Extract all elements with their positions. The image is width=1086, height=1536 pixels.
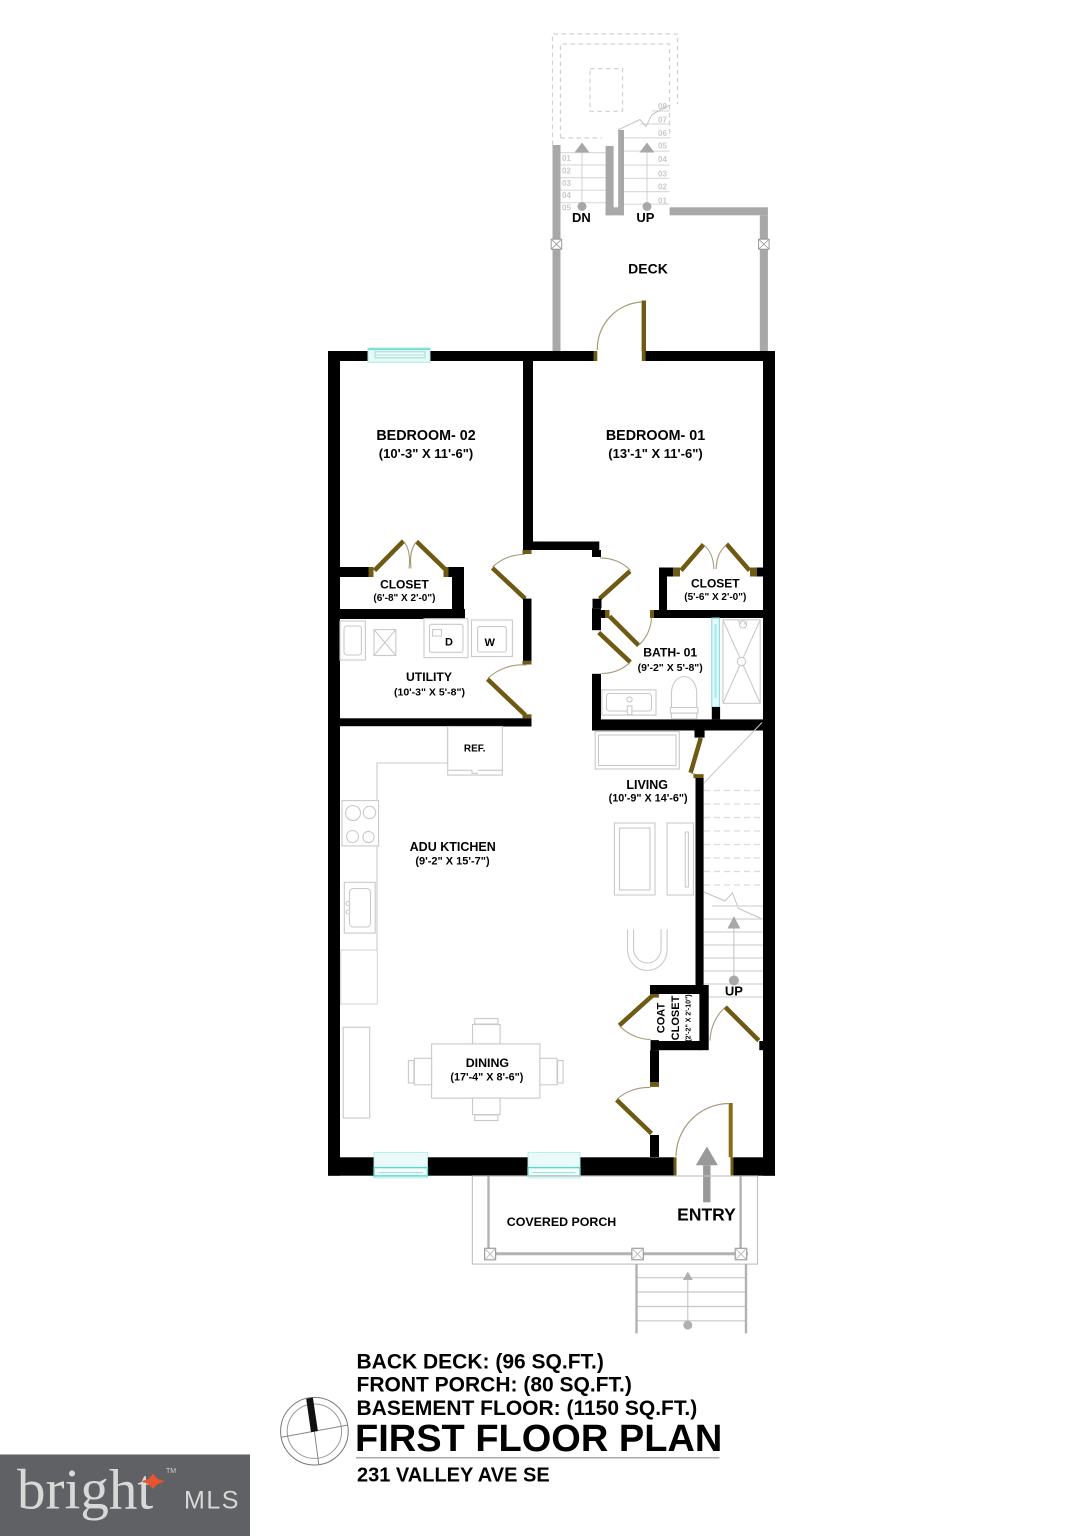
svg-text:07: 07	[658, 115, 667, 124]
svg-text:FIRST FLOOR PLAN: FIRST FLOOR PLAN	[355, 1418, 722, 1460]
svg-text:BACK DECK: (96 SQ.FT.): BACK DECK: (96 SQ.FT.)	[357, 1350, 604, 1373]
svg-text:04: 04	[658, 155, 667, 164]
svg-text:DINING: DINING	[466, 1056, 509, 1070]
svg-text:W: W	[485, 637, 496, 649]
svg-text:(5'-6" X 2'-0"): (5'-6" X 2'-0")	[684, 592, 746, 603]
svg-text:LIVING: LIVING	[626, 778, 668, 792]
svg-text:(17'-4" X 8'-6"): (17'-4" X 8'-6")	[450, 1071, 523, 1083]
svg-text:ADU KTICHEN: ADU KTICHEN	[410, 840, 496, 854]
svg-text:CLOSET: CLOSET	[380, 578, 429, 592]
svg-text:COVERED PORCH: COVERED PORCH	[507, 1215, 617, 1229]
svg-text:(9'-2" X 5'-8"): (9'-2" X 5'-8")	[638, 662, 703, 674]
svg-text:03: 03	[658, 170, 667, 179]
svg-text:03: 03	[562, 179, 571, 188]
svg-text:MLS: MLS	[184, 1487, 240, 1515]
svg-text:UP: UP	[725, 984, 743, 999]
svg-text:05: 05	[658, 141, 667, 150]
svg-text:02: 02	[658, 183, 667, 192]
svg-text:D: D	[445, 637, 453, 649]
svg-text:02: 02	[562, 166, 571, 175]
svg-text:FRONT PORCH: (80 SQ.FT.): FRONT PORCH: (80 SQ.FT.)	[357, 1374, 632, 1397]
svg-text:06: 06	[658, 129, 667, 138]
svg-text:CLOSET: CLOSET	[670, 995, 682, 1040]
svg-text:04: 04	[562, 191, 571, 200]
svg-text:bright: bright	[17, 1459, 153, 1522]
svg-text:BEDROOM- 02: BEDROOM- 02	[376, 428, 475, 444]
svg-text:REF.: REF.	[464, 744, 486, 755]
svg-text:05: 05	[562, 204, 571, 213]
svg-text:231 VALLEY AVE SE: 231 VALLEY AVE SE	[357, 1465, 550, 1487]
svg-text:BATH- 01: BATH- 01	[643, 645, 697, 659]
svg-text:BEDROOM- 01: BEDROOM- 01	[606, 428, 705, 444]
svg-text:(2'-2" X 2'-10"): (2'-2" X 2'-10")	[686, 994, 693, 1041]
svg-text:ENTRY: ENTRY	[677, 1205, 736, 1225]
svg-text:01: 01	[562, 154, 571, 163]
svg-text:DECK: DECK	[628, 261, 668, 277]
svg-text:DN: DN	[572, 210, 591, 225]
svg-text:CLOSET: CLOSET	[691, 576, 740, 590]
svg-text:(10'-3" X 11'-6"): (10'-3" X 11'-6")	[379, 446, 473, 461]
svg-text:BASEMENT FLOOR: (1150 SQ.FT.): BASEMENT FLOOR: (1150 SQ.FT.)	[357, 1397, 698, 1420]
svg-text:(10'-9" X 14'-6"): (10'-9" X 14'-6")	[609, 793, 688, 805]
svg-text:UTILITY: UTILITY	[406, 670, 452, 684]
svg-text:UP: UP	[636, 210, 654, 225]
svg-text:COAT: COAT	[656, 1003, 668, 1034]
svg-text:(9'-2" X 15'-7"): (9'-2" X 15'-7")	[415, 855, 490, 867]
svg-text:(6'-8" X 2'-0"): (6'-8" X 2'-0")	[373, 593, 435, 604]
svg-text:(13'-1" X 11'-6"): (13'-1" X 11'-6")	[608, 446, 702, 461]
svg-text:01: 01	[658, 196, 667, 205]
svg-text:(10'-3" X 5'-8"): (10'-3" X 5'-8")	[394, 686, 465, 698]
svg-text:TM: TM	[166, 1468, 176, 1475]
